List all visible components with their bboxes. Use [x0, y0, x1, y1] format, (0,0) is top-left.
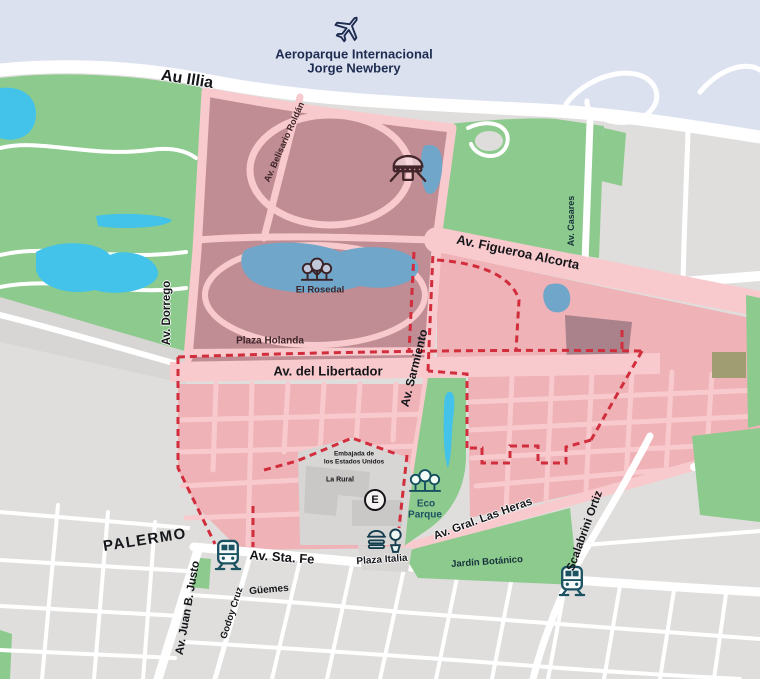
map-canvas[interactable]: E Aeroparque Internacional Jorge Newbery… — [0, 0, 760, 679]
plaza-italia-square — [358, 545, 412, 572]
godoy-cruz-road — [215, 556, 250, 679]
subway-e-badge[interactable]: E — [364, 489, 386, 511]
la-rural-grounds — [298, 438, 412, 572]
roads-northeast — [683, 132, 760, 282]
map-geometry — [0, 0, 760, 679]
subway-e-label: E — [371, 494, 378, 506]
